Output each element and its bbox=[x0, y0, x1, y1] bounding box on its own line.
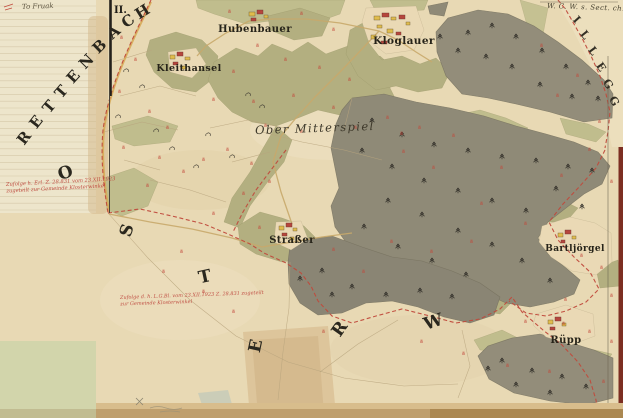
map-svg: II. W. C. W. s. Sect. ch. To Fruak Ober … bbox=[0, 0, 623, 418]
building bbox=[170, 55, 175, 59]
building bbox=[572, 236, 576, 239]
building bbox=[558, 233, 563, 237]
bottom-edge-strip bbox=[0, 409, 96, 418]
building bbox=[257, 10, 263, 14]
margin-note: To Fruak bbox=[22, 2, 54, 11]
map-sheet: II. W. C. W. s. Sect. ch. To Fruak Ober … bbox=[0, 0, 623, 418]
building bbox=[185, 57, 190, 60]
building bbox=[286, 223, 292, 227]
settlement-label: Kloglauer bbox=[373, 35, 435, 47]
building bbox=[279, 226, 284, 230]
bottom-edge-strip bbox=[430, 409, 623, 418]
settlement-label: Hubenbauer bbox=[218, 24, 292, 35]
building bbox=[399, 15, 405, 19]
building bbox=[293, 228, 297, 231]
settlement-label: Bartljörgel bbox=[545, 243, 605, 254]
building bbox=[561, 240, 565, 243]
building bbox=[562, 323, 566, 326]
settlement-label: Kleithansel bbox=[156, 63, 221, 74]
building bbox=[264, 15, 268, 18]
right-edge-maroon-strip bbox=[619, 147, 623, 418]
building bbox=[565, 230, 571, 234]
building bbox=[548, 320, 553, 324]
settlement-label: Straßer bbox=[269, 235, 315, 246]
building bbox=[382, 13, 389, 17]
building bbox=[177, 52, 183, 56]
building bbox=[374, 16, 380, 20]
building bbox=[555, 317, 561, 321]
building bbox=[377, 25, 382, 28]
settlement-label: Rüpp bbox=[550, 335, 581, 346]
building bbox=[251, 18, 256, 21]
building bbox=[249, 12, 255, 16]
building bbox=[550, 327, 555, 330]
building bbox=[406, 22, 410, 25]
building bbox=[387, 29, 393, 33]
pale-green-block bbox=[0, 341, 96, 418]
building bbox=[391, 17, 396, 20]
